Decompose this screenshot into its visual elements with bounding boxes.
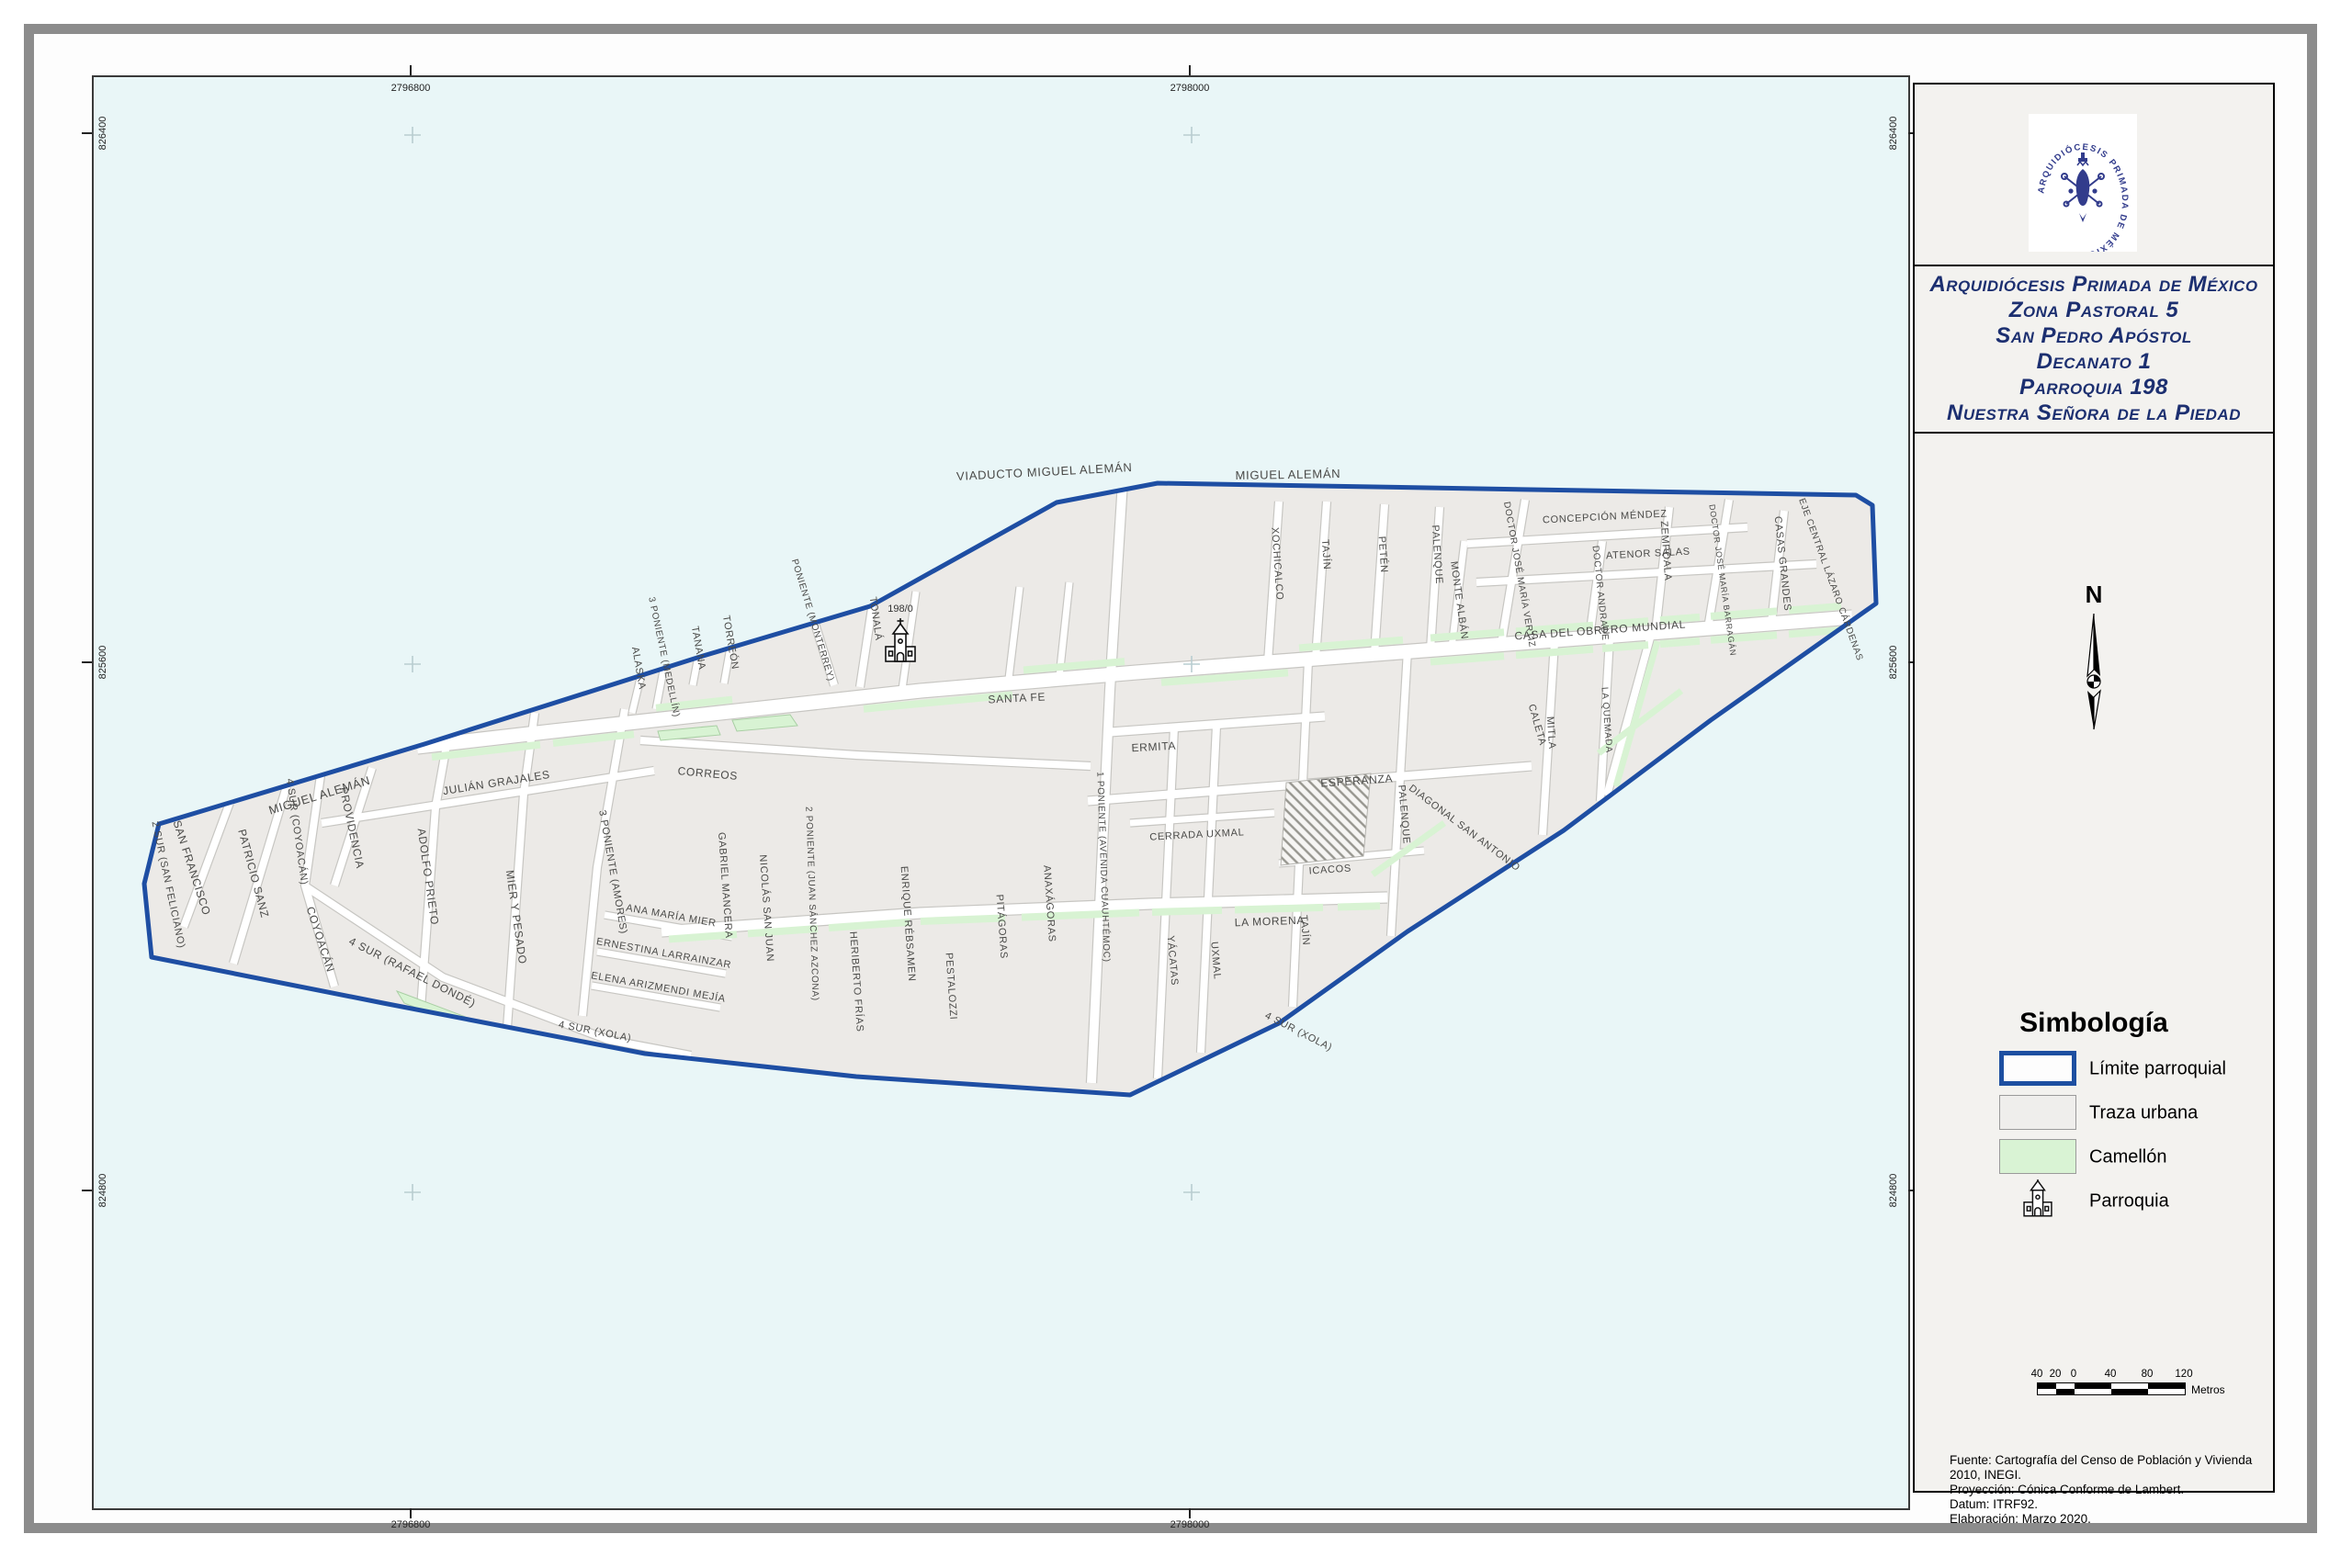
grid-tick [82,1190,92,1191]
grid-tick [1189,65,1191,75]
grid-tick [82,661,92,663]
map-title-block: Arquidiócesis Primada de México Zona Pas… [1915,272,2273,426]
legend-label: Límite parroquial [2089,1059,2226,1080]
map-canvas: 198/0MIGUEL ALEMÁNVIADUCTO MIGUEL ALEMÁN… [94,77,1908,1508]
limite-parroquial-swatch [1999,1051,2076,1086]
legend-item-camellon: Camellón [1915,1135,2273,1179]
street-label: ERMITA [1131,739,1176,755]
scale-bar: 402004080120 Metros [2037,1369,2257,1395]
legend-item-parroquia: Parroquia [1915,1179,2273,1224]
grid-tick [410,1508,412,1518]
grid-coordinate: 825600 [97,646,108,680]
sidebar: ARQUIDIÓCESIS PRIMADA DE MÉXICO Arquidió… [1913,83,2275,1493]
grid-tick [1189,1508,1191,1518]
north-arrow: N [2062,581,2126,737]
scale-bar-unit: Metros [2191,1383,2225,1396]
grid-tick [82,132,92,134]
title-line-5: Parroquia 198 [1915,375,2273,400]
street-label: LA MORENA [1234,914,1305,930]
church-icon [2012,1179,2064,1224]
legend-title: Simbología [1915,1008,2273,1039]
scale-tick-label: 120 [2175,1369,2192,1380]
grid-coordinate: 825600 [1888,646,1899,680]
grid-coordinate: 826400 [1888,117,1899,151]
street-label: TAJÍN [1319,539,1333,570]
legend-label: Traza urbana [2089,1103,2198,1124]
scale-tick-label: 0 [2071,1369,2076,1380]
source-line-4: Elaboración: Marzo 2020. [1950,1512,2273,1527]
svg-text:198/0: 198/0 [888,604,913,615]
title-line-1: Arquidiócesis Primada de México [1915,272,2273,298]
source-line-1: Fuente: Cartografía del Censo de Poblaci… [1950,1453,2273,1483]
grid-coordinate: 824800 [1888,1174,1899,1208]
archdiocese-seal-logo: ARQUIDIÓCESIS PRIMADA DE MÉXICO [2029,114,2137,252]
grid-coordinate: 2796800 [391,83,431,94]
scale-bar-graphic [2037,1382,2186,1395]
source-line-2: Proyección: Cónica Conforme de Lambert. [1950,1483,2273,1497]
scale-tick-label: 80 [2142,1369,2154,1380]
scale-tick-label: 40 [2105,1369,2117,1380]
title-line-6: Nuestra Señora de la Piedad [1915,400,2273,426]
legend-label: Parroquia [2089,1191,2169,1213]
north-label: N [2086,581,2103,608]
divider [1915,265,2273,266]
street-label: MIGUEL ALEMÁN [1235,467,1340,482]
camellon-swatch [1999,1139,2076,1174]
title-line-2: Zona Pastoral 5 [1915,298,2273,323]
legend-label: Camellón [2089,1147,2166,1168]
map-panel: 198/0MIGUEL ALEMÁNVIADUCTO MIGUEL ALEMÁN… [92,75,1910,1510]
scale-tick-label: 40 [2031,1369,2043,1380]
seal-icon: ARQUIDIÓCESIS PRIMADA DE MÉXICO [2029,114,2137,252]
street-label: MITLA [1544,716,1557,750]
source-credits: Fuente: Cartografía del Censo de Poblaci… [1950,1453,2273,1527]
legend-item-limite-parroquial: Límite parroquial [1915,1047,2273,1091]
traza-urbana-swatch [1999,1095,2076,1130]
north-arrow-icon: N [2062,581,2126,737]
legend: Límite parroquial Traza urbana Camellón … [1915,1047,2273,1224]
scale-tick-label: 20 [2050,1369,2062,1380]
source-line-3: Datum: ITRF92. [1950,1497,2273,1512]
grid-coordinate: 826400 [97,117,108,151]
grid-coordinate: 2798000 [1170,1519,1210,1530]
page: { "sidebar": { "logo_ring_text": "ARQUID… [0,0,2352,1568]
legend-item-traza-urbana: Traza urbana [1915,1091,2273,1135]
title-line-3: San Pedro Apóstol [1915,323,2273,349]
grid-coordinate: 824800 [97,1174,108,1208]
scale-bar-ticks: 402004080120 [2037,1369,2257,1382]
grid-coordinate: 2798000 [1170,83,1210,94]
grid-coordinate: 2796800 [391,1519,431,1530]
grid-tick [410,65,412,75]
divider [1915,432,2273,434]
title-line-4: Decanato 1 [1915,349,2273,375]
